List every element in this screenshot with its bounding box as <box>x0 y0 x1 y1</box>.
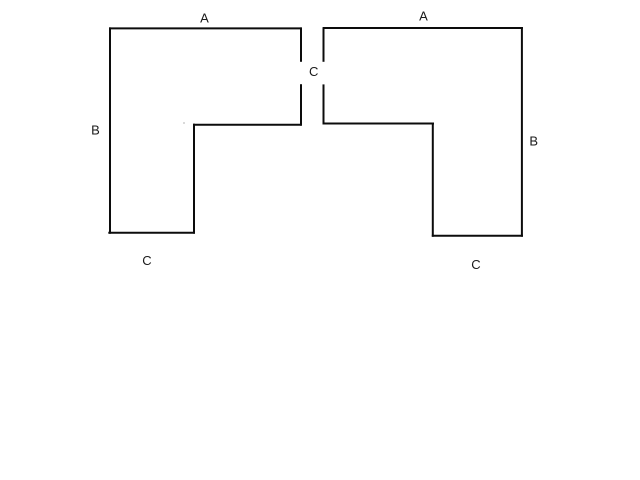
svg-text:B: B <box>91 123 100 138</box>
svg-text:A: A <box>419 9 428 24</box>
svg-text:C: C <box>142 253 151 268</box>
svg-text:B: B <box>529 133 538 148</box>
svg-text:C: C <box>309 64 318 79</box>
svg-text:A: A <box>200 11 209 26</box>
svg-text:C: C <box>471 257 480 272</box>
